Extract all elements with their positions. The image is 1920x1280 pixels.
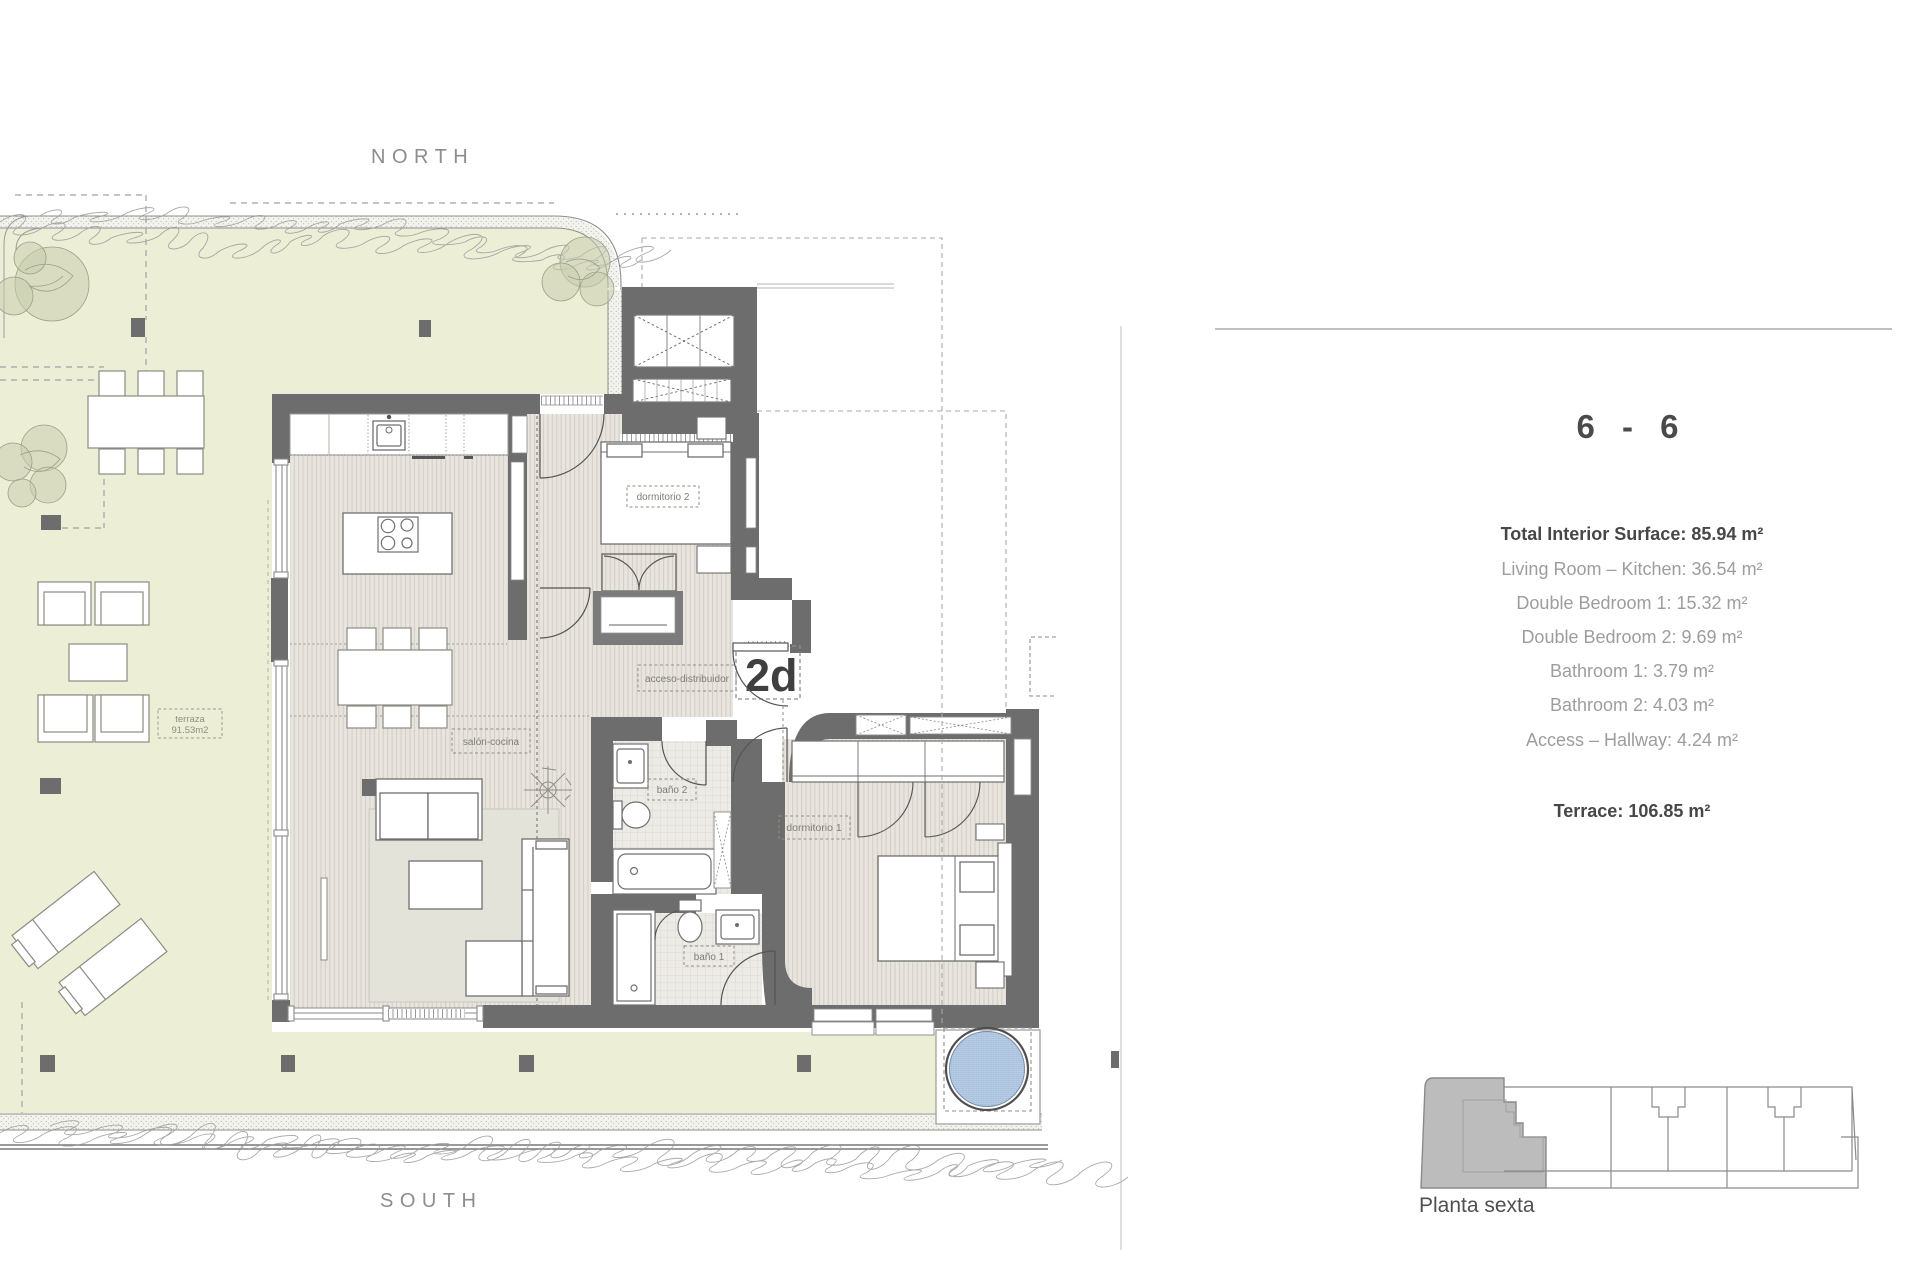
svg-text:Terrace: 106.85 m²: Terrace: 106.85 m² — [1554, 801, 1711, 821]
svg-text:acceso-distribuidor: acceso-distribuidor — [645, 674, 730, 685]
svg-text:6 - 6: 6 - 6 — [1576, 408, 1687, 445]
svg-text:SOUTH: SOUTH — [380, 1190, 483, 1212]
svg-text:Planta sexta: Planta sexta — [1419, 1194, 1535, 1217]
svg-text:Total Interior Surface: 85.94: Total Interior Surface: 85.94 m² — [1501, 524, 1764, 544]
svg-text:Double Bedroom 1: 15.32 m²: Double Bedroom 1: 15.32 m² — [1516, 593, 1747, 613]
svg-text:Double Bedroom 2: 9.69 m²: Double Bedroom 2: 9.69 m² — [1521, 627, 1742, 647]
svg-text:baño 2: baño 2 — [657, 785, 688, 796]
svg-text:terraza: terraza — [175, 714, 205, 725]
svg-text:NORTH: NORTH — [371, 146, 474, 168]
svg-text:Access – Hallway: 4.24 m²: Access – Hallway: 4.24 m² — [1526, 730, 1738, 750]
svg-text:Living Room – Kitchen: 36.54 m: Living Room – Kitchen: 36.54 m² — [1501, 559, 1762, 579]
svg-text:Bathroom 2: 4.03 m²: Bathroom 2: 4.03 m² — [1550, 695, 1714, 715]
svg-text:91.53m2: 91.53m2 — [172, 725, 209, 736]
svg-text:Bathroom 1: 3.79 m²: Bathroom 1: 3.79 m² — [1550, 661, 1714, 681]
svg-text:dormitorio 1: dormitorio 1 — [786, 822, 842, 834]
svg-text:baño 1: baño 1 — [694, 952, 725, 963]
svg-text:salón-cocina: salón-cocina — [463, 737, 520, 748]
svg-text:dormitorio 2: dormitorio 2 — [637, 492, 690, 503]
